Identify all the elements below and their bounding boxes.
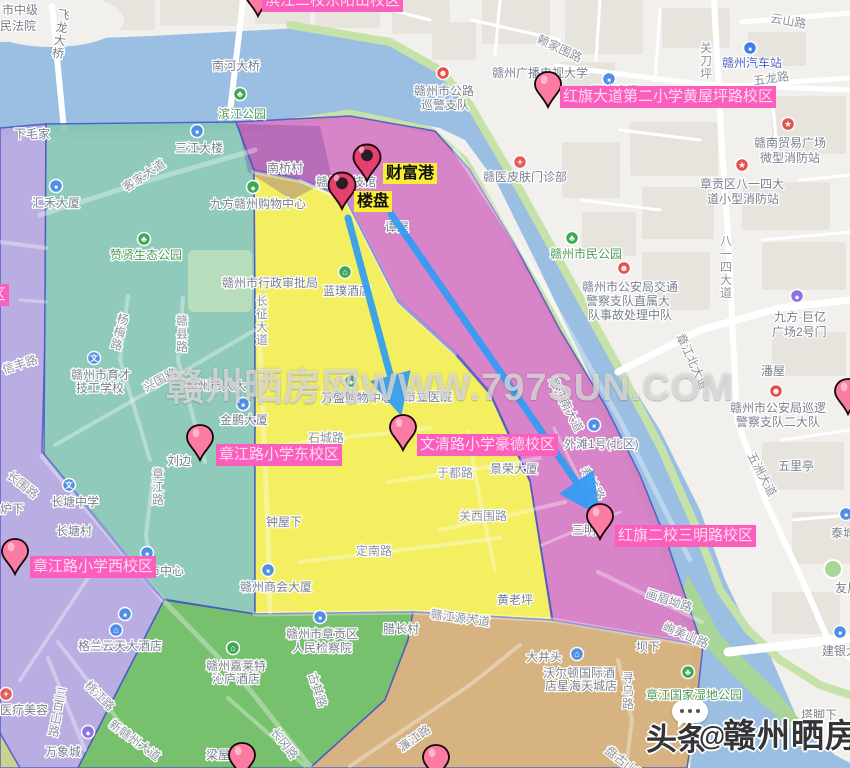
svg-text:☻: ☻	[438, 68, 447, 78]
park-icon: ♣	[566, 232, 579, 245]
fire-icon: ★	[782, 118, 795, 131]
city-block	[432, 22, 476, 60]
map-label: 章贡区八一四大	[700, 176, 784, 191]
svg-text:⌂: ⌂	[342, 267, 347, 277]
map-label: 沃尔顿国际酒	[543, 665, 615, 680]
map-label: 友尼	[835, 581, 850, 595]
map-label: 赣州商会大厦	[240, 579, 312, 594]
map-label: 沁庐酒店	[212, 671, 260, 686]
svg-text:■: ■	[318, 616, 322, 622]
school-district-label: 章江路小学东校区	[216, 444, 342, 466]
map-label: 队事故处理中队	[588, 307, 672, 322]
svg-text:☻: ☻	[771, 386, 780, 396]
city-block	[762, 242, 846, 290]
map-label: 赣州市公路	[414, 83, 474, 98]
school-icon: 文	[63, 479, 76, 492]
map-label: 赣州市章贡区	[286, 626, 358, 641]
map-label: 八一四大道	[720, 234, 732, 300]
map-label: 泰城	[831, 526, 850, 540]
hotel-icon: ⌂	[571, 648, 584, 661]
map-label: 赣州市育才	[71, 367, 131, 382]
svg-text:◆: ◆	[795, 295, 800, 301]
building-icon: ■	[191, 125, 204, 138]
map-label: 警察支队二大队	[736, 414, 820, 429]
road	[800, 175, 850, 180]
svg-text:文: 文	[90, 353, 99, 363]
map-label: 关西围路	[459, 508, 507, 523]
building-icon: ■	[840, 508, 850, 521]
map-label: 钟屋下	[266, 514, 302, 529]
map-label: 格兰云天大酒店	[78, 638, 162, 653]
svg-text:♣: ♣	[141, 234, 147, 244]
site-watermark: 赣州晒房网WWW.797SUN.COM	[166, 356, 734, 411]
city-block	[772, 592, 840, 634]
map-label: 微型消防站	[760, 150, 820, 165]
map-label: 坝下	[636, 640, 660, 654]
map-label: 南桥村	[267, 160, 303, 175]
map-label: 长征大道	[256, 294, 268, 347]
svg-text:■: ■	[123, 613, 127, 619]
shop-icon: ◆	[791, 290, 804, 303]
svg-text:♣: ♣	[237, 89, 243, 99]
map-label: 云山路	[769, 10, 807, 31]
svg-text:⌂: ⌂	[230, 643, 235, 653]
svg-text:★: ★	[784, 119, 792, 129]
map-label: 赣县路	[176, 314, 188, 354]
map-label: 石城路	[308, 430, 344, 445]
svg-text:文: 文	[65, 480, 74, 490]
road	[782, 430, 850, 440]
map-label: 汇禾大厦	[32, 196, 80, 210]
map-label: 潘屋	[761, 364, 785, 378]
map-label: 长塘村	[56, 523, 92, 538]
map-label: 赣州市公安局巡逻	[730, 400, 826, 415]
map-canvas[interactable]: ♣■■◆+☻■■★★♣☻◆☻■■♣⌂文◆文■■■⌂⌂♣■■■⌂+◆市中级民法院飞…	[0, 0, 850, 768]
school-icon: 文	[88, 352, 101, 365]
map-label: 南河大桥	[212, 58, 260, 73]
school-district-pin[interactable]	[423, 745, 449, 768]
svg-text:■: ■	[266, 569, 270, 575]
svg-text:◆: ◆	[251, 186, 256, 192]
fire-icon: ★	[736, 159, 749, 172]
svg-text:+: +	[517, 157, 522, 167]
map-label: 赣南贸易广场	[754, 135, 826, 150]
svg-text:★: ★	[738, 160, 746, 170]
map-label: 定南路	[356, 543, 392, 558]
hospital-icon: +	[514, 156, 527, 169]
park-icon: ♣	[682, 666, 695, 679]
map-label: 寻乌路	[622, 671, 634, 711]
city-block	[630, 122, 718, 176]
property-label: 楼盘	[354, 191, 392, 212]
road	[20, 300, 46, 302]
map-label: 五里亭	[778, 458, 814, 473]
svg-text:■: ■	[838, 631, 842, 637]
building-icon: ■	[119, 608, 132, 621]
police-icon: ☻	[437, 67, 450, 80]
bus-icon: ■	[744, 42, 757, 55]
svg-text:⌂: ⌂	[113, 625, 118, 635]
map-label: 巡警支队	[421, 97, 469, 112]
map-label: 章江国家湿地公园	[646, 687, 742, 702]
map-label: 赣州市民公园	[550, 246, 622, 261]
shop-icon: ◆	[247, 181, 260, 194]
school-district-pin[interactable]	[229, 743, 255, 768]
map-label: 道小型消防站	[707, 191, 779, 206]
map-label: 关刀坪	[700, 41, 712, 81]
map-label: 塔脚下	[801, 707, 837, 722]
map-label: 赣州嘉莱特	[206, 658, 266, 673]
svg-text:♣: ♣	[685, 667, 691, 677]
map-label: 章江路	[152, 466, 164, 507]
school-district-label: 章江路小学西校区	[30, 556, 156, 578]
school-district-label: 文清路小学豪德校区	[417, 434, 558, 456]
svg-text:⌂: ⌂	[574, 649, 579, 659]
map-label: 建银大	[822, 644, 850, 658]
map-label: 外滩1号(北区)	[564, 437, 639, 451]
map-label: 刘边	[167, 454, 191, 468]
map-label: 人民检察院	[292, 640, 352, 655]
school-district-label: 红旗二校三明路校区	[615, 525, 756, 547]
building-icon: ■	[50, 180, 63, 193]
map-label: 下毛家	[14, 126, 50, 141]
school-district-label: 红旗大道第二小学黄屋坪路校区	[560, 86, 776, 108]
building-icon: ■	[262, 564, 275, 577]
park-icon: ♣	[138, 233, 151, 246]
map-label: 赣州市行政审批局	[222, 275, 318, 290]
map-label: 店星海天城店	[545, 678, 617, 693]
map-label: 万象城	[45, 745, 81, 759]
hotel-icon: ⌂	[110, 624, 123, 637]
map-label: 赣州市公安局交通	[582, 279, 678, 294]
school-district-pin[interactable]	[835, 379, 850, 414]
hotel-icon: ⌂	[227, 642, 240, 655]
map-label: 于都路	[437, 465, 473, 480]
building-icon: ■	[314, 611, 327, 624]
svg-text:♣: ♣	[569, 233, 575, 243]
shop-icon: ◆	[82, 726, 95, 739]
map-label: 黄老坪	[497, 593, 533, 607]
svg-text:◆: ◆	[86, 731, 91, 737]
map-label: 腊长村	[383, 622, 419, 636]
property-label: 财富港	[383, 163, 437, 184]
map-label: 广场2号门	[772, 324, 827, 339]
map-label: 赣医皮肤门诊部	[483, 169, 567, 184]
city-block	[662, 8, 730, 48]
map-label: 长塘中学	[51, 494, 99, 509]
city-block	[565, 0, 643, 54]
school-district-label: 滨江二校东阳山校区	[262, 0, 403, 12]
map-label: 医疗美容	[0, 702, 48, 717]
map-label: 民法院	[0, 19, 36, 33]
road	[655, 10, 660, 80]
building-icon: ■	[588, 419, 601, 432]
svg-text:+: +	[3, 689, 8, 699]
city-block	[562, 142, 620, 198]
medical-icon: +	[0, 688, 13, 701]
map-label: 金鹏大厦	[220, 412, 268, 427]
police-icon: ☻	[618, 262, 631, 275]
map-label: 炉下	[0, 502, 24, 516]
svg-text:☻: ☻	[619, 263, 628, 273]
map-label: 赣州汽车站	[722, 55, 782, 70]
svg-text:■: ■	[748, 47, 752, 53]
city-block	[642, 187, 714, 239]
school-district-pin[interactable]	[535, 72, 561, 107]
map-label: 滨江公园	[218, 106, 266, 121]
svg-text:■: ■	[54, 185, 58, 191]
map-label: 三江大楼	[175, 140, 223, 155]
map-label: 警察支队直属大	[586, 293, 670, 308]
map-label: 九方赣州购物中心	[210, 196, 306, 211]
roundabout	[824, 560, 842, 578]
map-label: 市中级	[2, 2, 38, 17]
map-label: 梁屋	[206, 747, 230, 762]
city-block	[160, 0, 240, 26]
map-label: 九方·巨亿	[774, 309, 826, 324]
map-label: 大井头	[526, 650, 562, 664]
map-label: 景荣大厦	[490, 462, 538, 476]
road	[762, 232, 850, 240]
svg-text:■: ■	[844, 513, 848, 519]
svg-text:■: ■	[195, 130, 199, 136]
hotel-icon: ⌂	[339, 266, 352, 279]
svg-text:■: ■	[592, 424, 596, 430]
map-label: 技工学校	[76, 380, 124, 395]
building-icon: ■	[834, 626, 847, 639]
school-district-label: 区	[0, 284, 9, 306]
map-label: 赞贤生态公园	[110, 248, 182, 262]
park-icon: ♣	[234, 88, 247, 101]
police-icon: ☻	[770, 385, 783, 398]
